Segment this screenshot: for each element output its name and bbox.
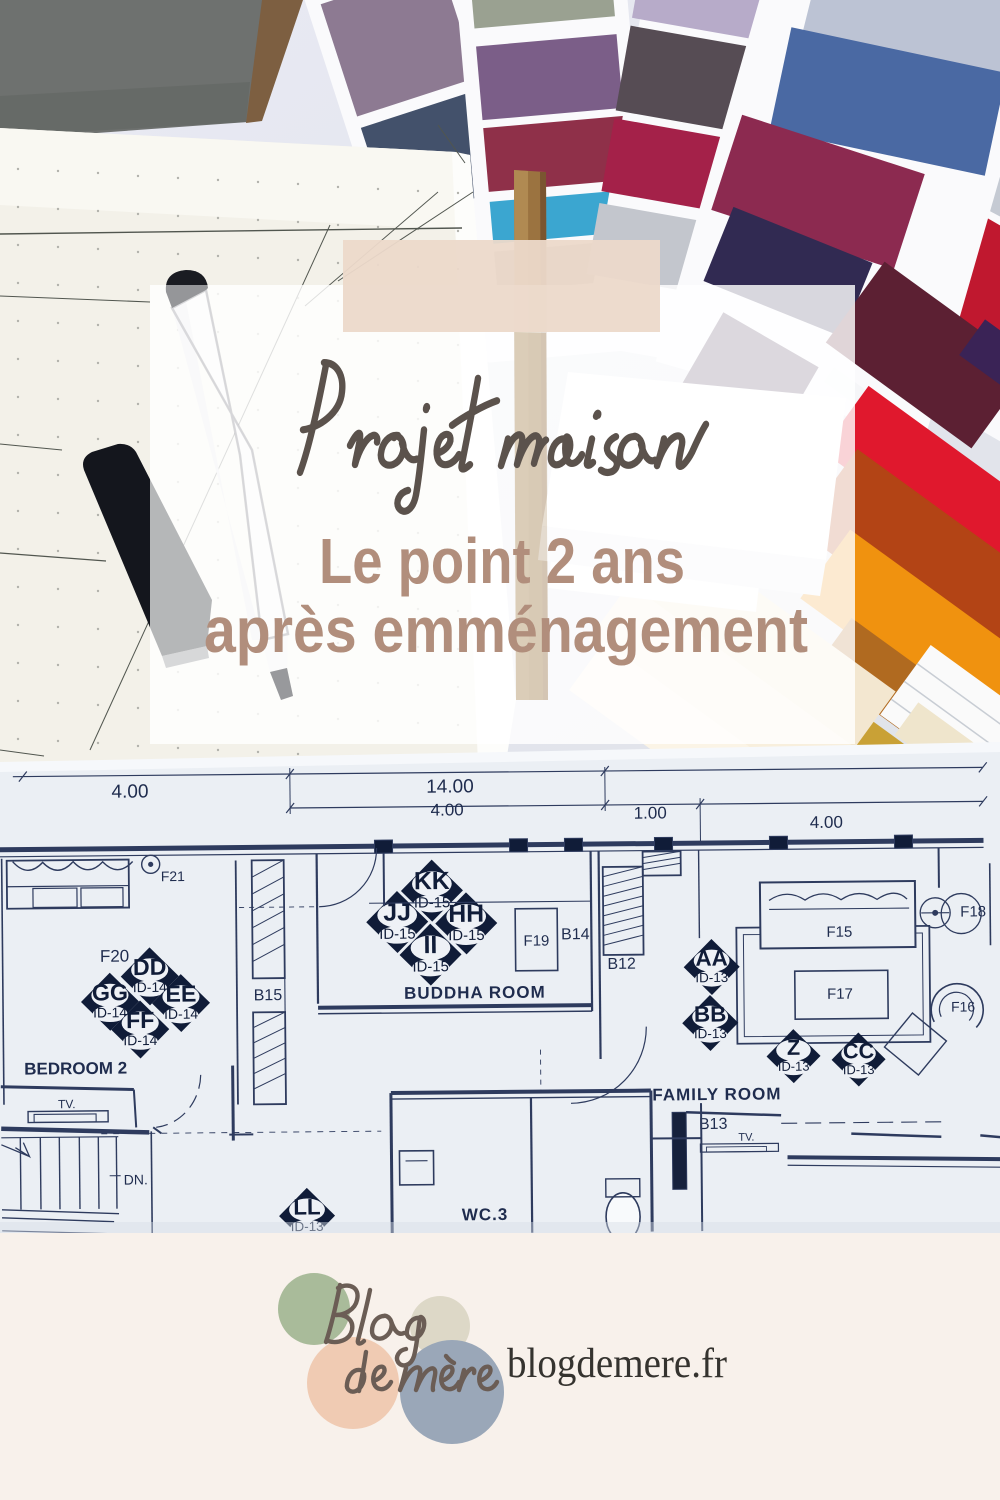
svg-text:1.00: 1.00: [634, 803, 667, 822]
svg-text:BUDDHA ROOM: BUDDHA ROOM: [404, 983, 546, 1003]
svg-text:BB: BB: [694, 1001, 727, 1026]
svg-text:II: II: [423, 932, 437, 959]
svg-text:Le point 2 ans: Le point 2 ans: [319, 525, 685, 597]
svg-text:4.00: 4.00: [431, 800, 464, 819]
svg-text:BEDROOM 2: BEDROOM 2: [24, 1059, 127, 1079]
svg-text:TV.: TV.: [738, 1132, 754, 1144]
svg-text:ID-14: ID-14: [133, 979, 167, 995]
svg-text:4.00: 4.00: [810, 813, 843, 832]
svg-text:4.00: 4.00: [111, 781, 148, 802]
svg-text:ID-14: ID-14: [123, 1032, 157, 1048]
svg-text:DD: DD: [133, 954, 167, 980]
svg-text:ID-13: ID-13: [695, 970, 728, 985]
svg-text:KK: KK: [414, 868, 450, 895]
svg-text:Z: Z: [787, 1035, 800, 1060]
svg-text:ID-13: ID-13: [778, 1059, 810, 1074]
svg-text:ID-15: ID-15: [414, 895, 451, 911]
svg-text:WC.3: WC.3: [462, 1205, 509, 1224]
svg-text:HH: HH: [448, 901, 484, 928]
svg-text:FF: FF: [126, 1007, 155, 1033]
svg-text:blogdemere.fr: blogdemere.fr: [507, 1341, 727, 1387]
svg-text:EE: EE: [165, 980, 196, 1006]
svg-text:FAMILY ROOM: FAMILY ROOM: [652, 1084, 781, 1104]
svg-text:F21: F21: [161, 868, 185, 884]
svg-text:B12: B12: [607, 956, 636, 973]
svg-text:F18: F18: [960, 903, 986, 920]
svg-text:AA: AA: [695, 945, 728, 970]
svg-text:14.00: 14.00: [426, 776, 474, 797]
svg-text:ID-14: ID-14: [164, 1006, 198, 1022]
svg-text:CC: CC: [843, 1038, 874, 1063]
svg-text:F15: F15: [826, 924, 852, 941]
svg-text:DN.: DN.: [124, 1171, 148, 1187]
svg-text:F16: F16: [951, 998, 975, 1014]
svg-text:ID-13: ID-13: [843, 1062, 875, 1077]
svg-text:ID-13: ID-13: [694, 1026, 727, 1041]
svg-text:LL: LL: [293, 1194, 321, 1219]
svg-text:ID-14: ID-14: [93, 1004, 127, 1020]
svg-text:B14: B14: [561, 926, 590, 943]
svg-text:ID-15: ID-15: [412, 959, 449, 975]
svg-text:ID-15: ID-15: [379, 927, 416, 943]
svg-text:B13: B13: [699, 1116, 728, 1133]
svg-text:F17: F17: [827, 986, 853, 1003]
svg-text:après emménagement: après emménagement: [204, 594, 808, 666]
svg-text:TV.: TV.: [58, 1097, 76, 1111]
svg-text:F20: F20: [100, 947, 129, 966]
svg-text:GG: GG: [92, 979, 128, 1005]
svg-text:ID-15: ID-15: [448, 928, 485, 944]
svg-text:B15: B15: [254, 987, 283, 1004]
svg-text:F19: F19: [523, 933, 549, 950]
